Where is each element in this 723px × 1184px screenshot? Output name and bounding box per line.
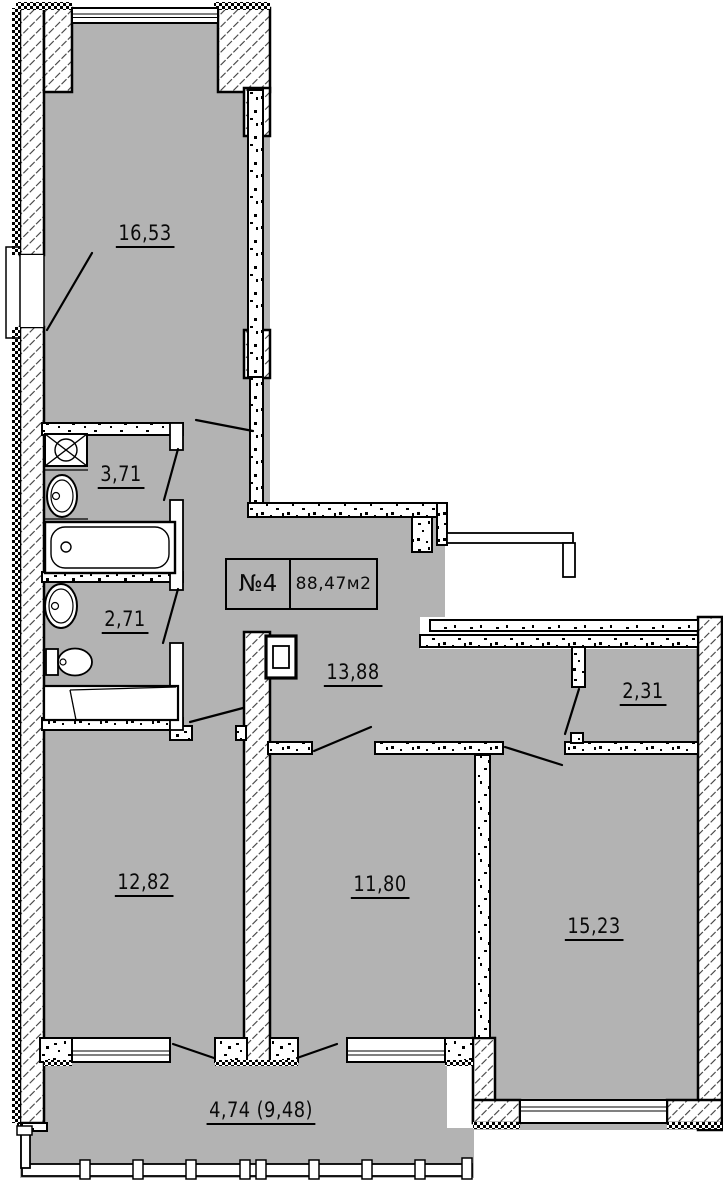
ventilation-shaft xyxy=(266,636,296,678)
bathtub xyxy=(45,522,175,573)
room-area-label-15-23: 15,23 xyxy=(565,915,623,941)
room-area-label-13-88: 13,88 xyxy=(324,661,382,687)
unit-info-box: №4 88,47м2 xyxy=(225,558,378,610)
room-area-label-12-82: 12,82 xyxy=(115,871,173,897)
unit-number: №4 xyxy=(227,560,291,608)
sink-lower xyxy=(45,584,77,628)
room-area-label-16-53: 16,53 xyxy=(116,222,174,248)
room-area-label-11-80: 11,80 xyxy=(351,873,409,899)
exterior-gap xyxy=(447,1062,473,1128)
window-bottom-left xyxy=(72,1038,170,1062)
total-area: 88,47м2 xyxy=(291,560,376,608)
room-area-label-3-71: 3,71 xyxy=(98,463,145,489)
room-area-label-2-71: 2,71 xyxy=(102,608,149,634)
toilet xyxy=(46,649,92,676)
room-area-label-balcony: 4,74 (9,48) xyxy=(207,1099,316,1125)
window-bottom-mid xyxy=(347,1038,445,1062)
window-top xyxy=(72,8,218,23)
washing-machine xyxy=(45,434,87,466)
floor-plan: №4 88,47м2 16,53 3,71 2,71 13,88 2,31 12… xyxy=(0,0,723,1184)
shower-tray xyxy=(44,686,178,720)
room-area-label-2-31: 2,31 xyxy=(620,680,667,706)
